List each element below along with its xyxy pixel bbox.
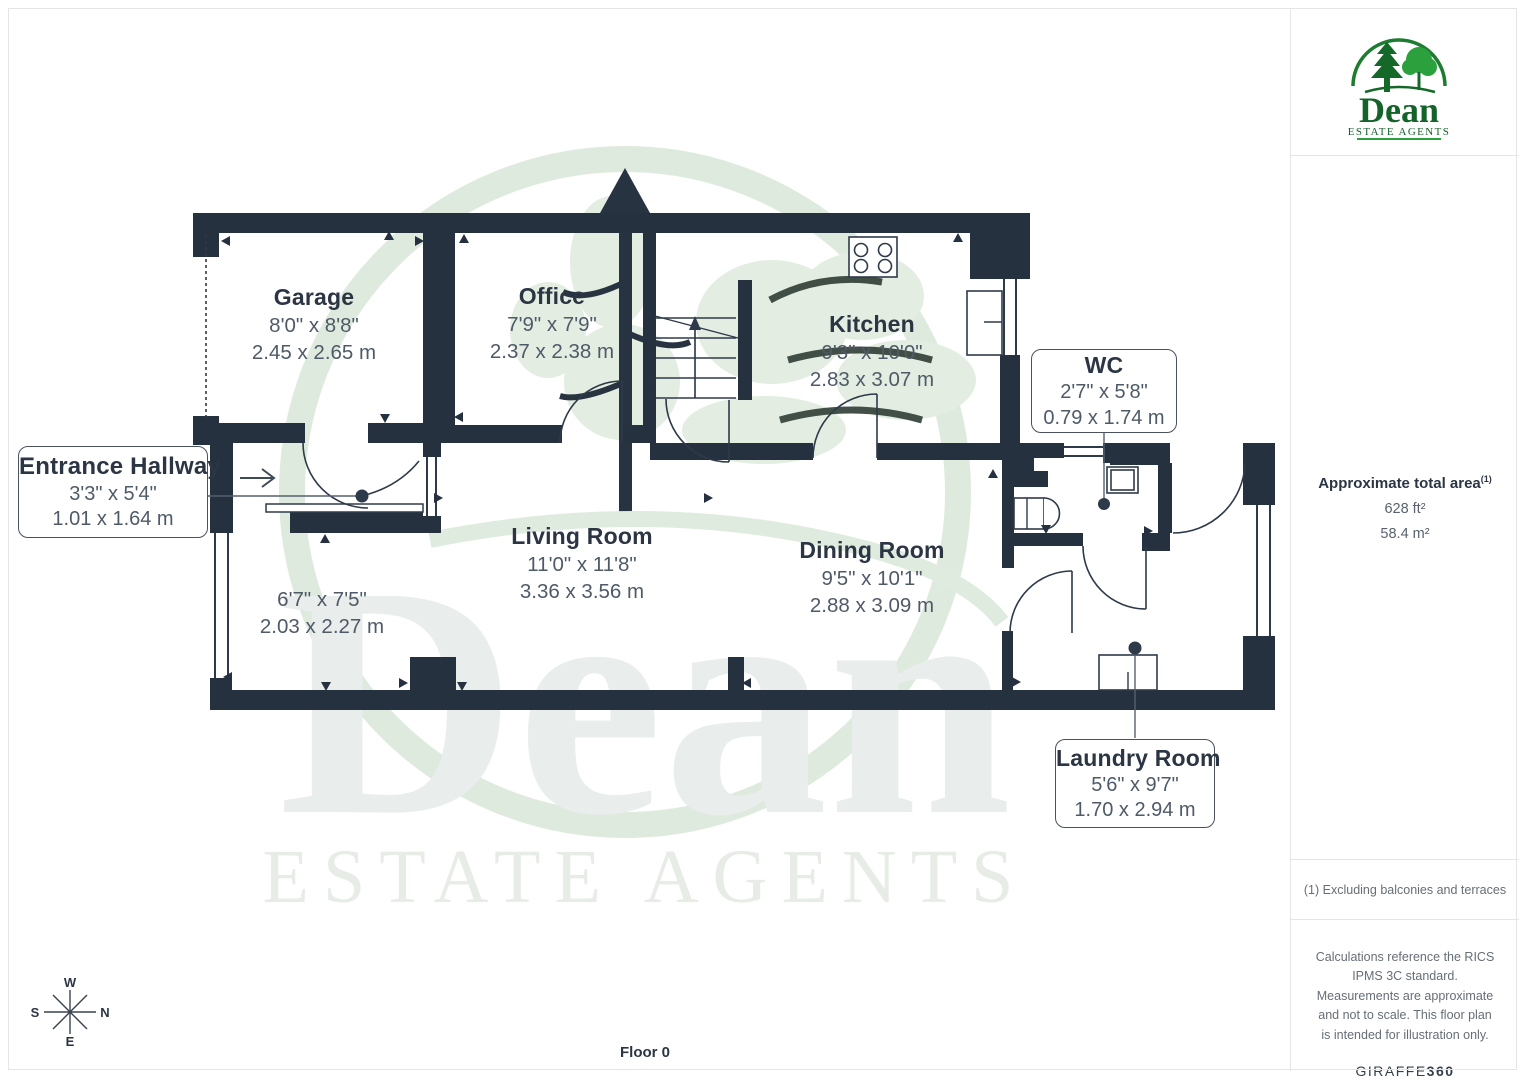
total-area-metric: 58.4 m² [1380,526,1429,542]
logo-pine-tree [1371,42,1403,92]
provider-logo: GIRAFFE360 [1291,1063,1519,1079]
entrance-anchor-dot [356,490,369,503]
fridge [967,291,1002,355]
room-dims-metric: 1.70 x 2.94 m [1056,799,1214,822]
hallway-low-wall [266,504,423,512]
wc-door-arc [1083,546,1146,609]
room-dims-metric: 2.45 x 2.65 m [252,341,376,365]
room-dims-imperial: 5'6" x 9'7" [1056,774,1214,797]
room-label-dining-room: Dining Room 9'5" x 10'1" 2.88 x 3.09 m [799,537,944,618]
laundry-anchor-dot [1129,642,1142,655]
room-name: Laundry Room [1056,745,1214,772]
total-area-imperial: 628 ft² [1384,501,1425,517]
room-label-living-room: Living Room 11'0" x 11'8" 3.36 x 3.56 m [511,523,652,604]
room-dims-imperial: 2'7" x 5'8" [1032,381,1176,404]
compass-label-top: W [64,976,77,990]
room-name: Garage [252,284,376,311]
room-name: Entrance Hallway [19,453,207,481]
room-dims-metric: 2.37 x 2.38 m [490,340,614,364]
room-dims-metric: 0.79 x 1.74 m [1032,407,1176,430]
callout-laundry-room: Laundry Room 5'6" x 9'7" 1.70 x 2.94 m [1055,739,1215,828]
brand-logo: Dean ESTATE AGENTS [1291,9,1519,156]
floor-label: Floor 0 [0,1044,1290,1061]
compass-label-left: S [31,1005,40,1020]
window-living-left [210,533,233,678]
laundry-door-arc [1173,463,1245,533]
sidebar: Dean ESTATE AGENTS Approximate total are… [1290,9,1519,1071]
room-dims-metric: 3.36 x 3.56 m [511,580,652,604]
room-dims-metric: 2.88 x 3.09 m [799,594,944,618]
hall-door-arc [362,461,419,496]
callout-entrance-hallway: Entrance Hallway 3'3" x 5'4" 1.01 x 1.64… [18,446,208,538]
room-label-garage: Garage 8'0" x 8'8" 2.45 x 2.65 m [252,284,376,365]
compass: W N E S [28,976,112,1048]
room-label-kitchen: Kitchen 9'3" x 10'0" 2.83 x 3.07 m [810,311,934,392]
logo-tagline: ESTATE AGENTS [1348,126,1451,138]
floorplan-page: { "brand": {"name": "Dean", "tagline": "… [0,0,1527,1080]
total-area-panel: Approximate total area(1) 628 ft² 58.4 m… [1291,156,1519,860]
wc-anchor-dot [1098,498,1110,510]
footnote-marker: (1) [1481,474,1492,484]
room-dims-imperial: 3'3" x 5'4" [19,483,207,506]
room-dims-imperial: 7'9" x 7'9" [490,313,614,337]
room-label-office: Office 7'9" x 7'9" 2.37 x 2.38 m [490,283,614,364]
dining-door-arc [1010,571,1072,633]
room-dims-imperial: 9'5" x 10'1" [799,567,944,591]
room-name: Office [490,283,614,310]
room-dims-imperial: 6'7" x 7'5" [260,588,384,612]
room-name: Living Room [511,523,652,550]
room-dims-metric: 2.83 x 3.07 m [810,368,934,392]
footnote: (1) Excluding balconies and terraces [1291,860,1519,920]
staircase [655,316,738,398]
room-dims-imperial: 11'0" x 11'8" [511,553,652,577]
logo-name: Dean [1359,90,1439,130]
room-name: WC [1032,352,1176,379]
room-dims-imperial: 8'0" x 8'8" [252,314,376,338]
disclaimer-panel: Calculations reference the RICS IPMS 3C … [1291,920,1519,1079]
total-area-label: Approximate total area(1) [1318,474,1492,492]
room-label-nook: 6'7" x 7'5" 2.03 x 2.27 m [260,588,384,639]
provider-name: GIRAFFE [1355,1063,1426,1079]
room-dims-imperial: 9'3" x 10'0" [810,341,934,365]
room-dims-metric: 1.01 x 1.64 m [19,508,207,531]
compass-label-right: N [100,1005,109,1020]
callout-wc: WC 2'7" x 5'8" 0.79 x 1.74 m [1031,349,1177,433]
room-name: Kitchen [810,311,934,338]
window-hall-screen [423,457,441,516]
toilet [1014,498,1044,529]
entrance-arrow-icon [240,469,274,487]
room-name: Dining Room [799,537,944,564]
disclaimer-text: Calculations reference the RICS IPMS 3C … [1291,920,1519,1045]
kitchen-door-arc [813,394,877,458]
office-door-arc [560,381,622,443]
provider-suffix: 360 [1427,1063,1455,1079]
room-dims-metric: 2.03 x 2.27 m [260,615,384,639]
